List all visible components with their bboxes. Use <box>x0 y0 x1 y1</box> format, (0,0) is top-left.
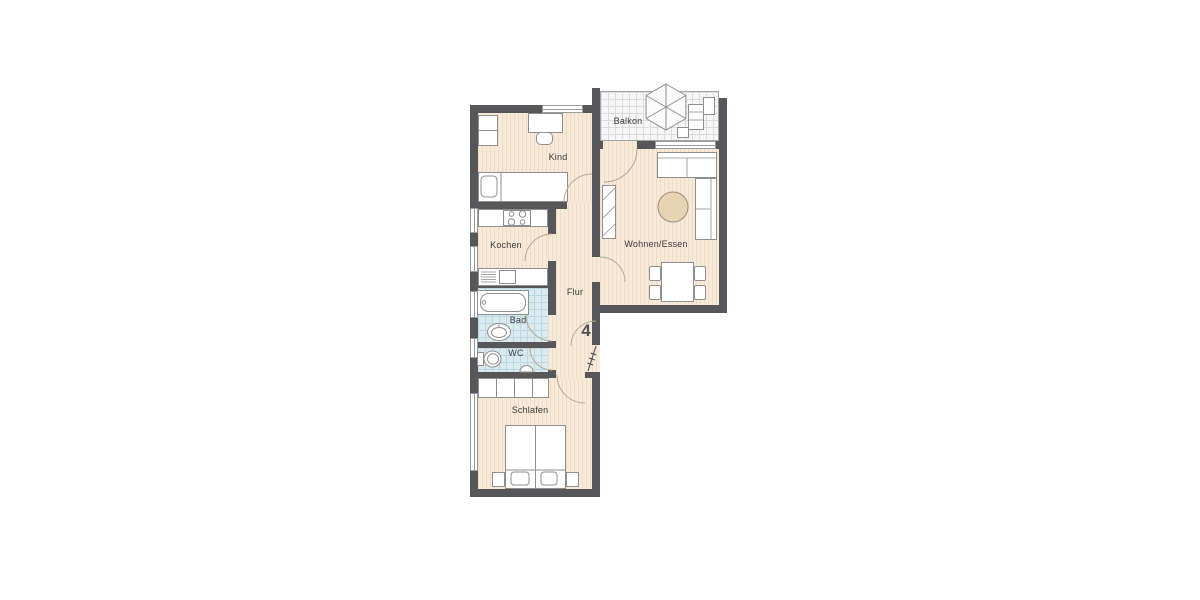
wc-washbasin <box>520 366 533 372</box>
double-bed-pillow-right <box>541 472 557 485</box>
floor-plan: Kind Kochen Bad WC Schlafen Flur Wohnen/… <box>470 88 727 497</box>
balkon-parasol <box>646 84 686 130</box>
kochen-drainer <box>481 272 496 282</box>
wc-toilet <box>484 351 501 367</box>
label-balkon: Balkon <box>614 116 643 126</box>
door-arc-kochen <box>525 234 552 261</box>
unit-number: 4 <box>581 321 590 341</box>
bathtub-inner <box>481 294 526 312</box>
bathtub-faucet <box>482 301 486 305</box>
kind-bed-pillow <box>481 176 497 197</box>
door-arc-wc <box>530 348 552 370</box>
label-kochen: Kochen <box>490 240 522 250</box>
lounger-crossbars <box>689 112 703 120</box>
entrance-door-leaf <box>587 346 596 371</box>
door-arc-balkon <box>604 149 637 182</box>
label-kind: Kind <box>549 152 568 162</box>
door-arc-kind <box>564 174 592 202</box>
stove-burners <box>508 211 525 225</box>
plan-vector-overlay <box>470 88 727 497</box>
door-arc-wohnen <box>600 257 625 282</box>
double-bed-pillow-left <box>511 472 529 485</box>
label-bad: Bad <box>510 315 527 325</box>
page: { "unit": { "number": "4" }, "rooms": { … <box>0 0 1200 600</box>
door-arc-bad <box>526 315 552 341</box>
wohnen-coffee-table <box>658 192 688 222</box>
label-wohnen-essen: Wohnen/Essen <box>624 239 687 249</box>
wohnen-shelf-hatch <box>603 188 615 236</box>
label-schlafen: Schlafen <box>512 405 549 415</box>
label-flur: Flur <box>567 287 583 297</box>
bad-washbasin <box>488 324 511 341</box>
door-arc-schlafen <box>557 375 585 403</box>
label-wc: WC <box>508 348 523 358</box>
